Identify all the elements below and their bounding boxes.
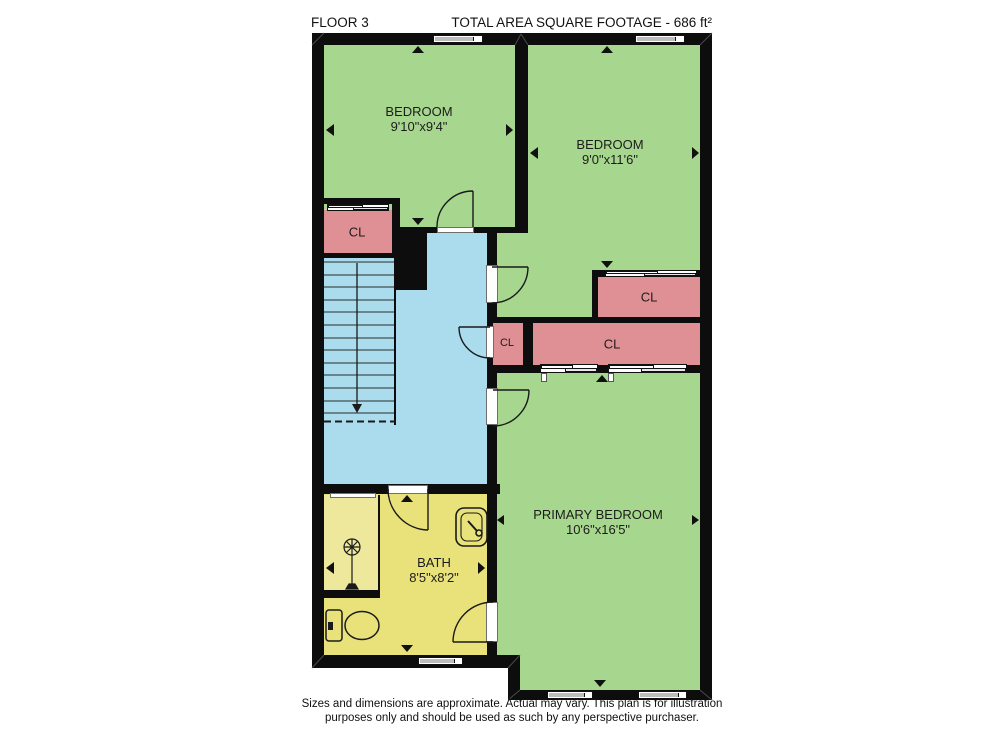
room-dims: 10'6"x16'5" — [533, 522, 663, 537]
wall — [396, 233, 427, 290]
closet-sliding-door — [605, 270, 697, 277]
door-opening — [486, 326, 494, 358]
door-opening — [486, 388, 498, 425]
floor-plan: FLOOR 3 TOTAL AREA SQUARE FOOTAGE - 686 … — [0, 0, 1000, 735]
closet-2-label: CL — [641, 290, 658, 305]
window — [433, 35, 483, 43]
wall — [312, 33, 324, 668]
sliding-panel — [353, 207, 388, 210]
door-opening — [486, 265, 498, 303]
wall — [312, 655, 520, 668]
window-pane — [420, 659, 455, 663]
window-pane — [637, 37, 676, 41]
hallway-lower — [396, 290, 427, 425]
window — [635, 35, 685, 43]
closet-3-label: CL — [604, 337, 621, 352]
disclaimer-line-1: Sizes and dimensions are approximate. Ac… — [302, 697, 723, 711]
shower-stall — [324, 495, 380, 590]
disclaimer: Sizes and dimensions are approximate. Ac… — [302, 697, 723, 725]
window-cap — [676, 36, 684, 42]
closet-4-label: CL — [500, 337, 514, 349]
hallway — [427, 233, 487, 425]
door-opening — [486, 602, 498, 642]
sliding-panel — [641, 368, 686, 372]
closet-1-label: CL — [349, 225, 366, 240]
wall — [324, 253, 396, 258]
wall — [394, 258, 396, 425]
bedroom-top-right-label: BEDROOM 9'0"x11'6" — [576, 137, 643, 167]
room-name: BEDROOM — [576, 137, 643, 152]
disclaimer-line-2: purposes only and should be used as such… — [302, 711, 723, 725]
room-name: PRIMARY BEDROOM — [533, 507, 663, 522]
door-opening — [437, 227, 474, 233]
room-dims: 9'10"x9'4" — [385, 119, 452, 134]
room-primary-bedroom-lower — [520, 655, 700, 690]
window — [418, 657, 463, 665]
sliding-panel — [644, 273, 696, 276]
shower-door — [330, 493, 376, 498]
bath-label: BATH 8'5"x8'2" — [409, 555, 459, 585]
room-bedroom-top-right-extension — [497, 233, 528, 317]
door-jamb — [608, 373, 614, 382]
room-dims: 8'5"x8'2" — [409, 570, 459, 585]
window-cap — [474, 36, 482, 42]
closet-sliding-door — [540, 364, 598, 373]
room-name: BATH — [409, 555, 459, 570]
door-opening — [388, 485, 428, 494]
stair-landing — [324, 425, 487, 490]
floor-label: FLOOR 3 — [311, 15, 369, 30]
door-jamb — [541, 373, 547, 382]
wall — [515, 45, 528, 233]
window-cap — [455, 658, 462, 664]
wall — [523, 323, 533, 365]
window-pane — [435, 37, 474, 41]
closet-sliding-door — [608, 364, 687, 373]
primary-bedroom-label: PRIMARY BEDROOM 10'6"x16'5" — [533, 507, 663, 537]
bedroom-top-left-label: BEDROOM 9'10"x9'4" — [385, 104, 452, 134]
room-name: BEDROOM — [385, 104, 452, 119]
sliding-panel — [565, 368, 597, 372]
room-dims: 9'0"x11'6" — [576, 152, 643, 167]
stairs-area — [324, 258, 394, 425]
closet-sliding-door — [327, 204, 389, 211]
wall — [322, 590, 380, 598]
total-area-label: TOTAL AREA SQUARE FOOTAGE - 686 ft² — [451, 15, 712, 30]
